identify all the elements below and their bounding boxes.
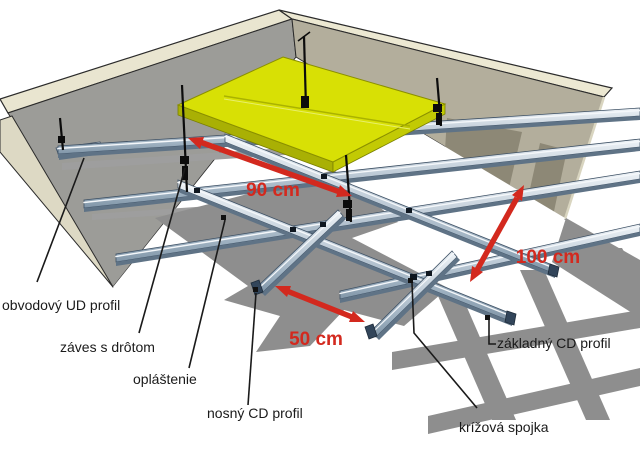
- dimension-50cm-label: 50 cm: [289, 329, 343, 350]
- ceiling-construction-diagram: 90 cm 50 cm 100 cm obvodový UD p: [0, 0, 640, 451]
- cross-connector-clip: [290, 227, 296, 232]
- callout-marker-bearing-cd: [253, 287, 258, 292]
- label-cross-connector: krížová spojka: [459, 419, 549, 435]
- label-bearing-cd-profile: nosný CD profil: [207, 405, 303, 421]
- dimension-100cm-label: 100 cm: [516, 247, 580, 268]
- cross-connector-clip: [321, 174, 327, 179]
- label-perimeter-ud-profile: obvodový UD profil: [2, 297, 120, 313]
- diagram-canvas: 90 cm 50 cm 100 cm obvodový UD p: [0, 0, 640, 451]
- label-cladding: opláštenie: [133, 371, 197, 387]
- label-hanger-with-wire: záves s drôtom: [60, 339, 155, 355]
- cross-connector-clip: [406, 208, 412, 213]
- callout-marker-cross-connector: [408, 278, 413, 283]
- dimension-90cm-label: 90 cm: [246, 180, 300, 201]
- callout-marker-cladding: [221, 215, 226, 220]
- callout-marker-base-cd: [485, 315, 490, 320]
- label-base-cd-profile: základný CD profil: [497, 335, 611, 351]
- cross-connector-clip: [320, 222, 326, 227]
- profile-end-cap: [505, 311, 516, 325]
- cross-connector-clip: [194, 188, 200, 193]
- cross-connector-clip: [426, 271, 432, 276]
